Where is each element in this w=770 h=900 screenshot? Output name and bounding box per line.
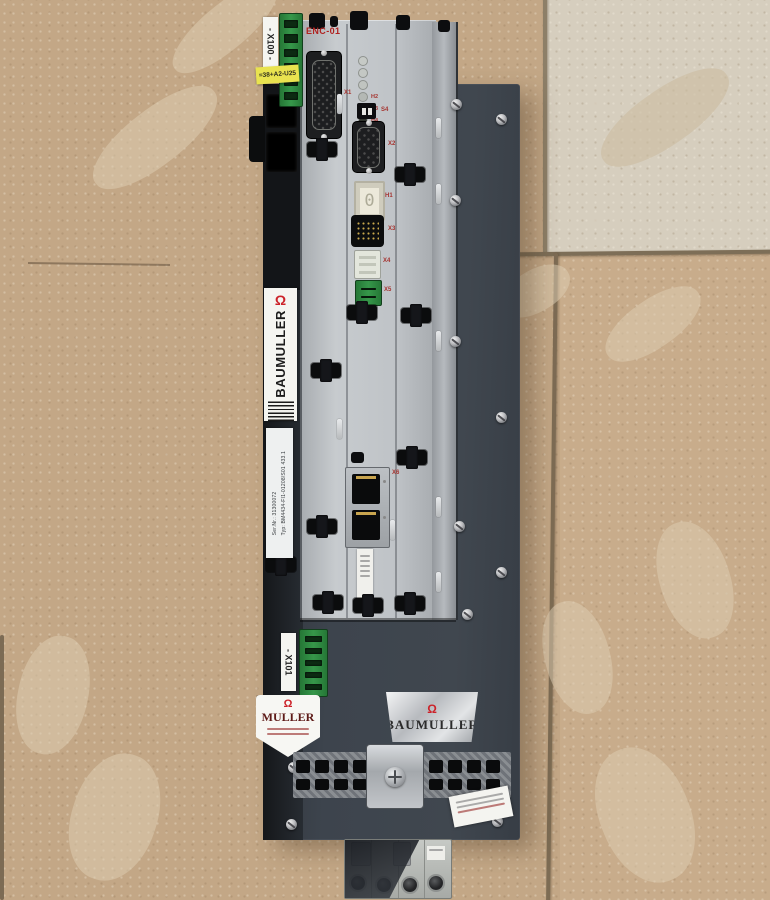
card-latch: [397, 450, 427, 465]
location-tag: =38+A2-U25: [255, 65, 299, 85]
shield-left-brand-text: MULLER: [262, 710, 315, 725]
spring-clip: [337, 94, 342, 114]
panel-screw: [496, 412, 507, 423]
baumuller-logo-icon: Ω: [275, 292, 286, 308]
power-terminal-block: [344, 839, 452, 899]
x100-label: - X100 -: [263, 17, 278, 71]
mounting-tab: [438, 20, 450, 32]
card-latch: [311, 363, 341, 378]
panel-screw: [454, 521, 465, 532]
panel-screw: [450, 336, 461, 347]
dsub15-port-label: X1: [344, 90, 351, 96]
dsub15-face: [312, 60, 336, 129]
aux-connector: [354, 250, 381, 279]
led-indicator: [358, 80, 368, 90]
pin-socket-connector: [351, 215, 384, 247]
pin-socket-label: X3: [388, 226, 395, 232]
tile-seam: [543, 0, 547, 256]
panel-screw: [286, 819, 297, 830]
card-latch: [347, 305, 377, 320]
led-indicator: [358, 56, 368, 66]
panel-screw: [496, 114, 507, 125]
card-latch: [401, 308, 431, 323]
rail-connector-slot: [266, 132, 297, 172]
x100-label-text: - X100 -: [266, 28, 276, 60]
panel-screw: [451, 99, 462, 110]
photo-scene: - X100 - =38+A2-U25 ENC-01 X1 H2 H3 H4 S…: [0, 0, 770, 900]
led-indicator: [358, 92, 368, 102]
x100-terminal-connector: [279, 13, 303, 107]
ethernet-port: [352, 474, 380, 504]
card-latch: [395, 167, 425, 182]
card-latch: [266, 557, 296, 572]
small-component: [351, 452, 364, 463]
baumuller-shield-badge-right: Ω BAUMULLER: [386, 692, 478, 742]
dip-switch: [357, 103, 376, 119]
baumuller-side-label: Ω BAUMULLER: [264, 288, 297, 421]
dsub9-port-label: X2: [388, 141, 395, 147]
aux-connector-label: X4: [383, 258, 390, 264]
baumuller-logo-icon: Ω: [427, 702, 437, 716]
serial-line: Ser.Nr.: 31300072: [272, 451, 278, 535]
panel-screw: [496, 567, 507, 578]
card-latch: [313, 595, 343, 610]
display-label: H1: [385, 193, 393, 199]
type-plate: Ser.Nr.: 31300072 Typ: BM4434-FI1-01208/…: [266, 428, 293, 558]
ethernet-label: X6: [392, 470, 399, 476]
mounting-clamp: [366, 744, 424, 809]
brand-name-vertical: BAUMULLER: [273, 310, 288, 398]
dsub9-face: [357, 127, 379, 168]
spring-clip: [436, 184, 441, 204]
terminal-screw: [403, 878, 417, 892]
green-terminal-label: X5: [384, 287, 391, 293]
module-edge-bracket: [432, 22, 458, 620]
barcode: [268, 401, 294, 421]
panel-screw: [450, 195, 461, 206]
terminal-screw: [429, 876, 443, 890]
spring-clip: [436, 118, 441, 138]
ethernet-led: [383, 480, 386, 483]
module-slot-seam: [395, 24, 397, 618]
ethernet-port: [352, 510, 380, 540]
spring-clip: [390, 520, 395, 540]
clamp-screw: [385, 767, 405, 787]
mounting-tab: [396, 15, 410, 30]
mounting-tab: [350, 11, 368, 30]
panel-screw: [462, 609, 473, 620]
spring-clip: [337, 419, 342, 439]
type-line: Typ: BM4434-FI1-01208/S01 433.1: [281, 451, 287, 535]
tile-seam: [0, 635, 4, 900]
module-bottom-shadow: [300, 618, 456, 622]
dsub15-connector: [307, 52, 341, 138]
card-latch: [307, 519, 337, 534]
x101-label-text: - X101: [284, 649, 294, 676]
seven-segment-value: 0: [364, 191, 374, 211]
dual-ethernet-jack: [345, 467, 390, 548]
x101-label: - X101: [281, 633, 296, 691]
card-latch: [307, 142, 337, 157]
spring-clip: [436, 497, 441, 517]
dip-switch-label: S4: [381, 107, 388, 113]
baumuller-logo-icon: Ω: [284, 698, 293, 710]
led-indicator: [358, 68, 368, 78]
x101-terminal-connector: [299, 629, 328, 697]
spring-clip: [436, 331, 441, 351]
shield-right-brand-text: BAUMULLER: [385, 717, 479, 733]
dsub9-connector: [353, 122, 384, 172]
spring-clip: [436, 572, 441, 592]
ethernet-led: [383, 516, 386, 519]
led-label: H2: [371, 94, 378, 100]
location-tag-text: =38+A2-U25: [259, 70, 297, 80]
mounting-lug: [249, 116, 265, 162]
enc-module-label: ENC-01: [306, 26, 340, 36]
card-latch: [395, 596, 425, 611]
terminal-mini-label: [427, 846, 445, 860]
card-latch: [353, 598, 383, 613]
